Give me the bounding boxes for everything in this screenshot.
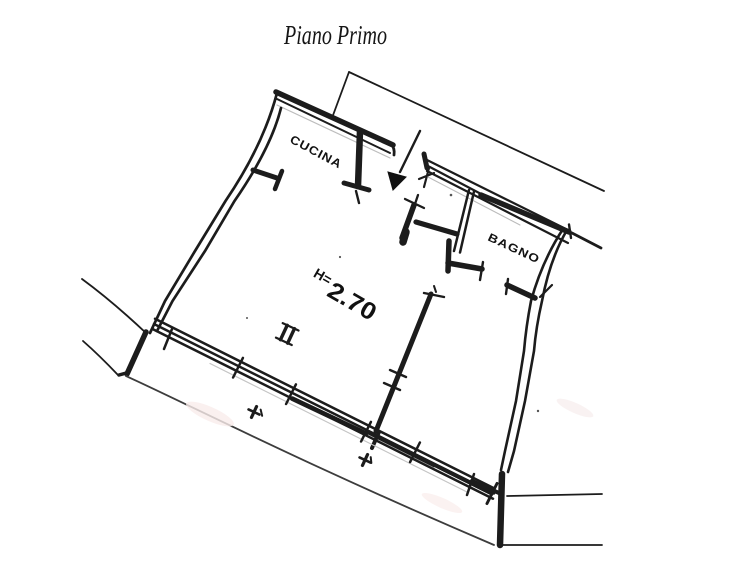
svg-text:2.70: 2.70 (323, 277, 382, 326)
svg-text:BAGNO: BAGNO (486, 232, 542, 267)
svg-text:Piano Primo: Piano Primo (283, 20, 387, 50)
svg-text:CUCINA: CUCINA (288, 132, 345, 171)
